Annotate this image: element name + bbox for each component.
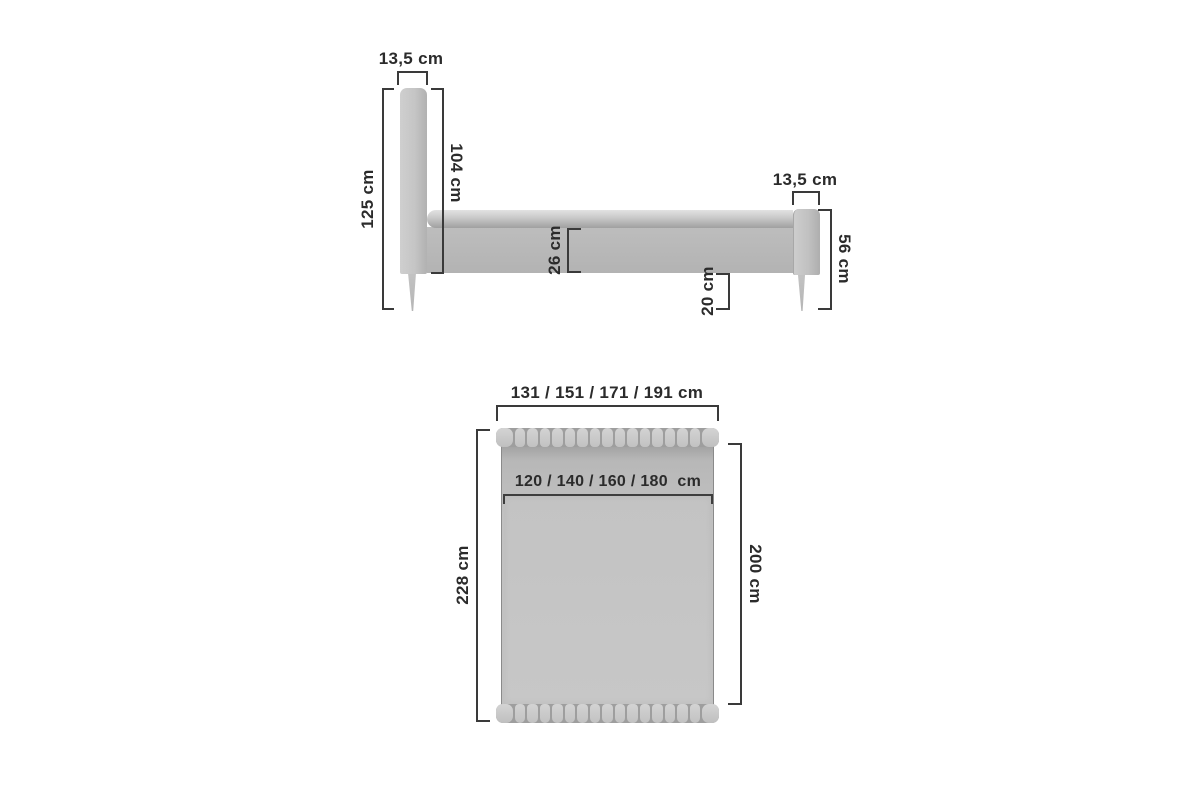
upholstery-channel	[602, 428, 612, 447]
upholstery-channel	[552, 704, 562, 723]
dim-mattress-length-label: 200 cm	[745, 544, 765, 603]
dim-line-segment	[728, 703, 742, 705]
upholstery-channel	[640, 428, 650, 447]
mattress-side-profile	[427, 210, 793, 228]
dim-line-segment	[397, 71, 399, 85]
upholstery-channel	[515, 704, 525, 723]
upholstery-channel	[677, 704, 687, 723]
headboard-profile	[400, 88, 427, 274]
dim-line-segment	[728, 273, 730, 310]
dim-line-segment	[567, 271, 581, 273]
dim-line-segment	[442, 88, 444, 274]
upholstery-channel	[615, 704, 625, 723]
dim-footboard-thickness-label: 13,5 cm	[773, 170, 837, 190]
upholstery-channel-cap	[702, 428, 719, 447]
mattress-plan	[504, 496, 712, 704]
footboard-channels-row	[496, 704, 719, 723]
dim-line-segment	[426, 71, 428, 85]
footboard-leg	[797, 274, 806, 311]
dim-overall-length-label: 228 cm	[453, 545, 473, 604]
upholstery-channel	[690, 428, 700, 447]
dim-line-segment	[382, 88, 394, 90]
upholstery-channel	[690, 704, 700, 723]
dim-line-segment	[818, 209, 832, 211]
dim-line-segment	[431, 88, 444, 90]
dim-line-segment	[567, 228, 569, 273]
upholstery-channel	[652, 428, 662, 447]
dim-line-segment	[716, 308, 730, 310]
upholstery-channel	[627, 704, 637, 723]
upholstery-channel	[565, 704, 575, 723]
upholstery-channel	[552, 428, 562, 447]
dim-headboard-thickness-label: 13,5 cm	[379, 49, 443, 69]
dim-line-segment	[503, 494, 505, 504]
dim-line-segment	[716, 273, 730, 275]
upholstery-channel	[590, 428, 600, 447]
dim-line-segment	[792, 191, 794, 205]
dim-line-segment	[830, 209, 832, 310]
dim-line-segment	[476, 429, 478, 722]
dim-line-segment	[496, 405, 498, 421]
upholstery-channel	[540, 428, 550, 447]
dim-line-segment	[476, 429, 490, 431]
dim-frame-height-label: 26 cm	[545, 225, 565, 275]
bed-frame-side-rail	[427, 227, 793, 273]
dim-line-segment	[792, 191, 820, 193]
upholstery-channel	[665, 428, 675, 447]
upholstery-channel	[540, 704, 550, 723]
dim-line-segment	[382, 308, 394, 310]
dim-line-segment	[503, 494, 713, 496]
dim-footboard-height-label: 56 cm	[834, 234, 854, 284]
upholstery-channel	[577, 428, 587, 447]
dim-headboard-above-base-label: 104 cm	[446, 143, 466, 202]
headboard-channels-row	[496, 428, 719, 447]
upholstery-channel-cap	[496, 428, 513, 447]
dim-line-segment	[431, 272, 444, 274]
bed-dimensions-diagram: 13,5 cm 125 cm 104 cm 26 cm 20 cm	[0, 0, 1200, 800]
upholstery-channel-cap	[702, 704, 719, 723]
dim-line-segment	[711, 494, 713, 504]
upholstery-channel	[565, 428, 575, 447]
upholstery-channel	[527, 428, 537, 447]
dim-line-segment	[818, 191, 820, 205]
upholstery-channel	[627, 428, 637, 447]
dim-line-segment	[496, 405, 719, 407]
upholstery-channel	[677, 428, 687, 447]
headboard-leg	[407, 273, 417, 311]
upholstery-channel	[590, 704, 600, 723]
dim-line-segment	[567, 228, 581, 230]
upholstery-channel	[527, 704, 537, 723]
dim-line-segment	[740, 443, 742, 705]
dim-line-segment	[728, 443, 742, 445]
dim-clearance-label: 20 cm	[698, 266, 718, 316]
upholstery-channel	[602, 704, 612, 723]
dim-line-segment	[397, 71, 428, 73]
upholstery-channel	[652, 704, 662, 723]
dim-line-segment	[818, 308, 832, 310]
upholstery-channel	[577, 704, 587, 723]
upholstery-channel	[615, 428, 625, 447]
dim-total-height-label: 125 cm	[358, 169, 378, 228]
dim-line-segment	[476, 720, 490, 722]
upholstery-channel	[515, 428, 525, 447]
dim-line-segment	[382, 88, 384, 310]
dim-mattress-width-label: 120 / 140 / 160 / 180 cm	[515, 473, 701, 491]
upholstery-channel-cap	[496, 704, 513, 723]
upholstery-channel	[640, 704, 650, 723]
dim-line-segment	[717, 405, 719, 421]
upholstery-channel	[665, 704, 675, 723]
dim-overall-width-label: 131 / 151 / 171 / 191 cm	[511, 383, 703, 403]
footboard-profile	[793, 209, 820, 275]
